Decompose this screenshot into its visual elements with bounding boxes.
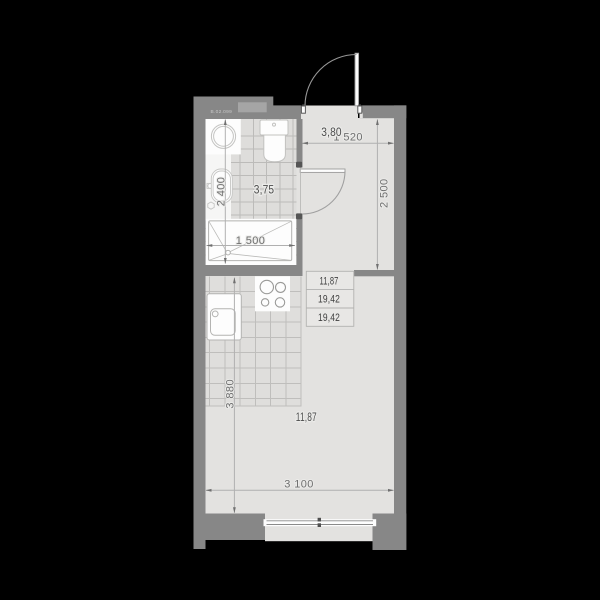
svg-text:2 500: 2 500 [378,178,390,208]
svg-text:1 500: 1 500 [236,235,266,247]
svg-text:3,75: 3,75 [254,185,275,197]
svg-text:3 100: 3 100 [284,479,314,491]
svg-text:11,87: 11,87 [296,412,317,424]
svg-text:3,80: 3,80 [321,127,342,139]
svg-text:3 880: 3 880 [225,379,237,409]
svg-text:2 400: 2 400 [216,177,228,207]
svg-text:11,87: 11,87 [320,275,339,287]
svg-text:В.02.099: В.02.099 [210,109,232,115]
svg-text:19,42: 19,42 [318,312,340,324]
svg-text:19,42: 19,42 [318,294,340,306]
